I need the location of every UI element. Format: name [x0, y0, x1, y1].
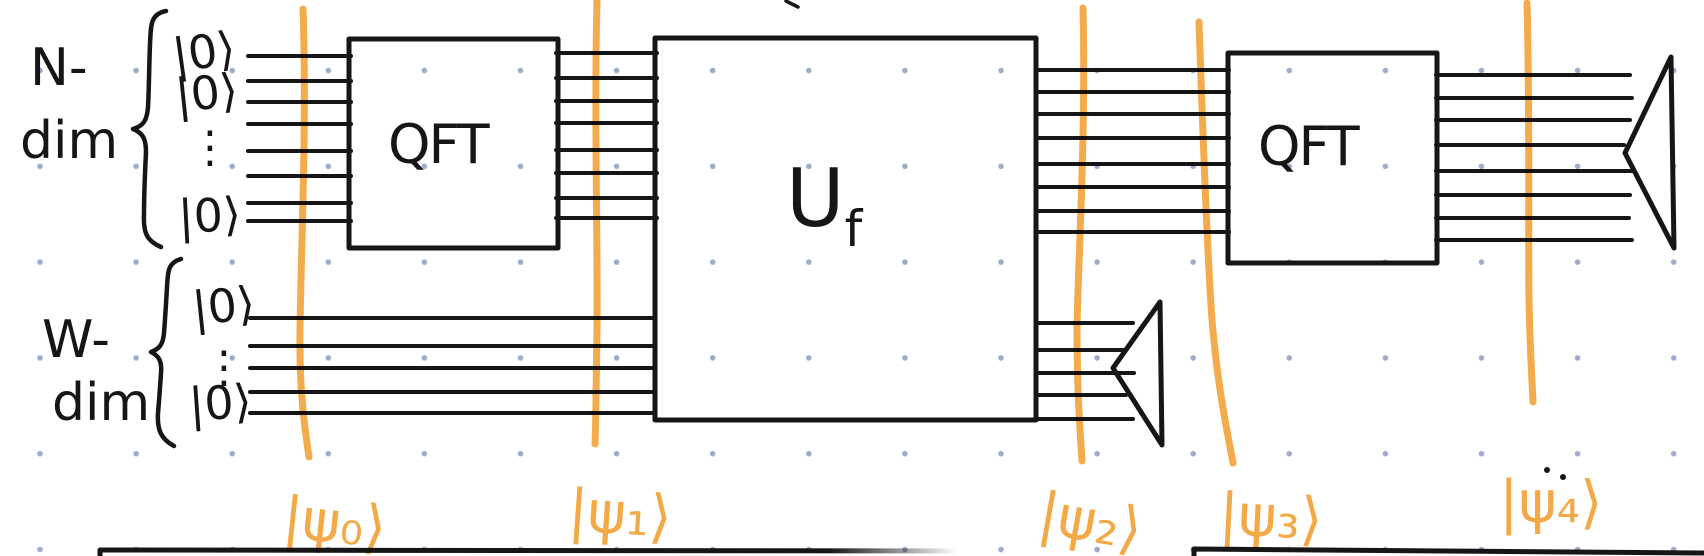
n-register-label-line2: dim	[20, 111, 118, 171]
w-ket-0: |0⟩	[190, 276, 258, 337]
n-ket-3: |0⟩	[177, 187, 243, 245]
w-register-label-line1: W-	[42, 310, 110, 370]
state-label-psi1: |ψ₁⟩	[566, 476, 674, 551]
n-ket-ellipsis: ⋮	[188, 122, 232, 173]
state-label-psi0: |ψ₀⟩	[280, 483, 390, 556]
n-register-label-line1: N-	[30, 38, 88, 98]
w-ket-2: |0⟩	[187, 374, 253, 433]
w-register-label-line2: dim	[52, 373, 150, 433]
state-divider-psi1	[595, 0, 597, 444]
state-label-psi3: |ψ₃⟩	[1217, 480, 1324, 553]
state-label-psi4: |ψ₄⟩	[1499, 468, 1603, 536]
qft1-gate-label: QFT	[388, 113, 491, 176]
qft2-gate-label: QFT	[1258, 115, 1361, 178]
dot-grid-background	[0, 0, 1704, 556]
n-ket-1: |0⟩	[173, 63, 241, 124]
drawing-canvas[interactable]: N- dim |0⟩ |0⟩ ⋮ |0⟩	[0, 0, 1704, 556]
notebook-page: N- dim |0⟩ |0⟩ ⋮ |0⟩	[0, 0, 1704, 556]
